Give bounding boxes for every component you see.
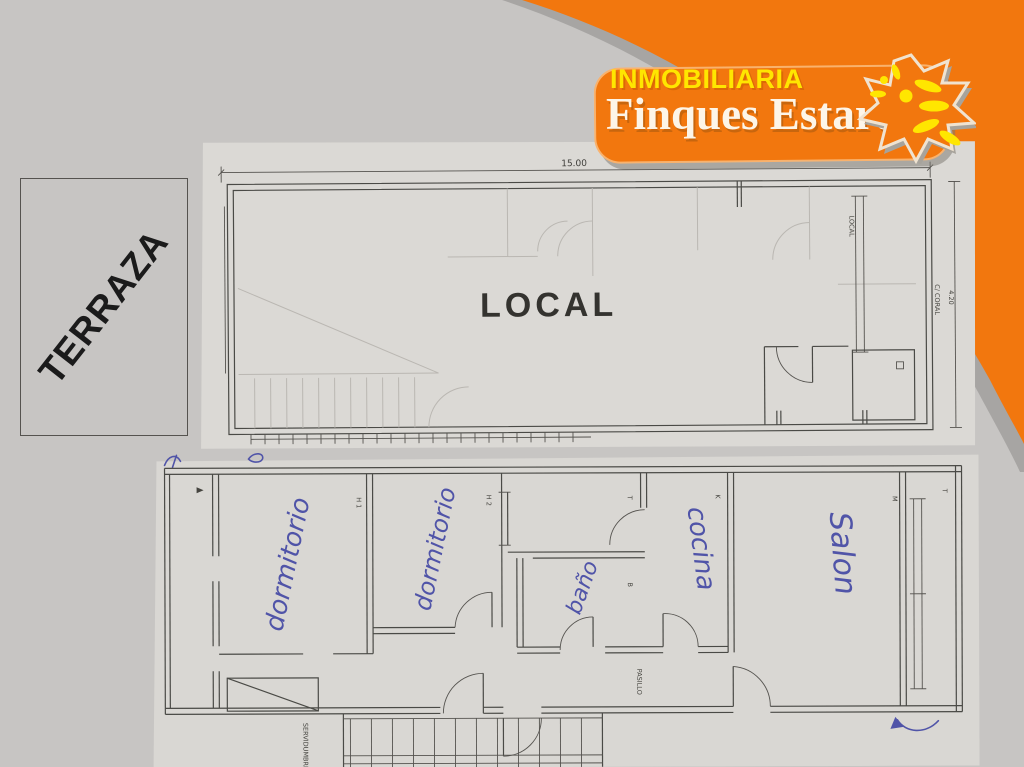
room-livingroom-label: Salon	[822, 511, 863, 596]
unit-label-small: LOCAL	[847, 216, 855, 238]
local-title: LOCAL	[480, 286, 617, 325]
room-h1-code: H 1	[355, 497, 363, 508]
sun-burst-icon	[852, 48, 976, 164]
corridor-label: PASILLO	[635, 669, 643, 695]
dimension-top-value: 15.00	[561, 159, 587, 169]
room-bath-code: B	[626, 583, 634, 587]
room-kitchen-code: K	[714, 494, 722, 499]
dimension-right-value: 4.20	[947, 290, 955, 305]
terrace-label: TERRAZA	[31, 222, 177, 393]
agency-logo: INMOBILIARIA Finques Estartit	[594, 58, 984, 168]
room-livingroom-code: M	[891, 496, 899, 502]
hall-code: T	[626, 495, 634, 500]
street-label: C/ CORAL	[933, 284, 941, 315]
room-h2-code: H 2	[485, 495, 493, 506]
window-code: T	[941, 488, 949, 493]
easement-label: SERVIDUMBRE	[301, 723, 309, 767]
floor-plan-apartment: dormitorio H 1 dormitorio H 2 T	[152, 449, 983, 767]
flyer-page: 15.00	[0, 0, 1024, 767]
terrace-box: TERRAZA	[20, 178, 188, 436]
floor-plan-local: 15.00	[197, 133, 981, 454]
